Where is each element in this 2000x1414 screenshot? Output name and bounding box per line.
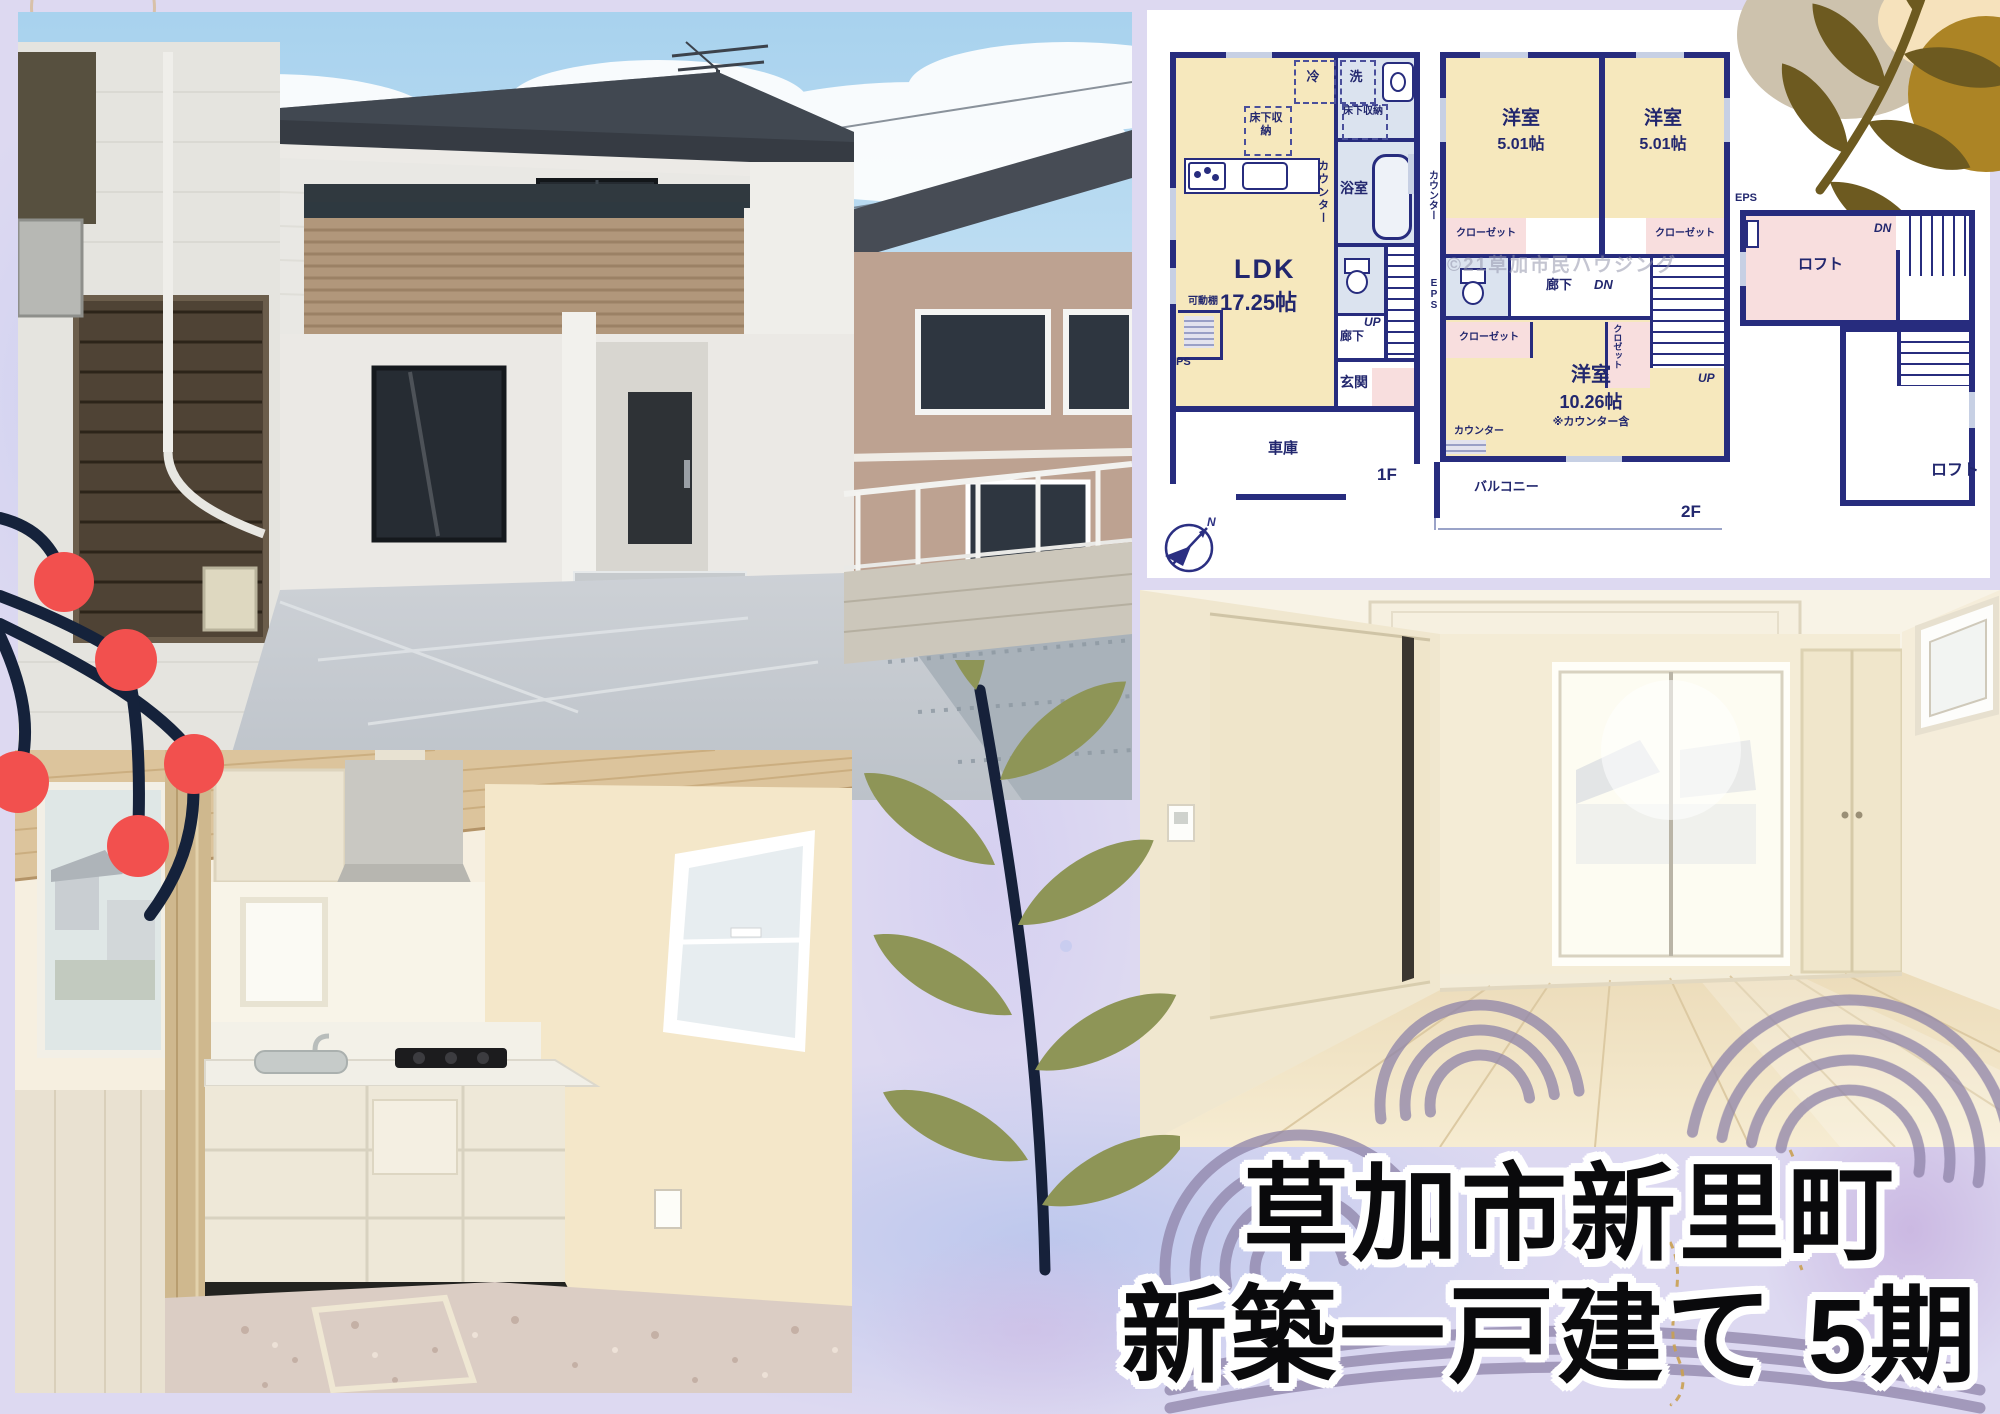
arc-group-center xyxy=(1367,992,1579,1119)
range-hood xyxy=(333,750,475,892)
berries-decoration xyxy=(0,400,300,940)
base-cabinets xyxy=(205,1086,577,1306)
closet-a-label: クローゼット xyxy=(1448,228,1524,240)
hallway-label-1f: 廊下 xyxy=(1340,330,1364,344)
watermark: ©21草加市民ハウジング xyxy=(1447,250,1677,277)
garage-area: 車庫 xyxy=(1170,412,1420,502)
real-estate-flyer: 冷 洗 床下収納 床下収納 洗面所 浴室 カウンター LDK 17.25帖 廊下 xyxy=(0,0,2000,1414)
west-room-a-size: 5.01帖 xyxy=(1476,136,1566,154)
closet-b-label: クローゼット xyxy=(1648,228,1722,240)
stairs-1f xyxy=(1388,245,1414,358)
loft-stairs-right xyxy=(1901,332,1969,386)
hallway-label-2f: 廊下 xyxy=(1546,278,1572,293)
sink-basin xyxy=(255,1051,347,1073)
compass-icon: N xyxy=(1157,516,1221,578)
dn-label-2f: DN xyxy=(1594,278,1613,293)
toilet-icon xyxy=(1344,258,1368,294)
loft-caption: ロフト xyxy=(1931,462,1979,480)
title-line-2: 新築一戸建て 5期 xyxy=(1100,1284,2000,1390)
closet-doors xyxy=(1802,650,1902,972)
floor-1f-plan: 冷 洗 床下収納 床下収納 洗面所 浴室 カウンター LDK 17.25帖 廊下 xyxy=(1170,52,1420,412)
eps-notch xyxy=(1746,220,1759,248)
counter-label-2f-left: カウンター xyxy=(1426,170,1438,270)
wood-balcony xyxy=(304,218,750,342)
counter-hatch-2f xyxy=(1446,440,1486,454)
entrance-label: 玄関 xyxy=(1340,374,1368,390)
gold-leaves-decoration xyxy=(1680,0,2000,210)
shelf-hatch xyxy=(1184,316,1214,348)
title-line-1: 草加市新里町 xyxy=(1140,1162,2000,1268)
main-room-label: 洋室 xyxy=(1536,364,1646,387)
counter-label-2f-bottom: カウンター xyxy=(1454,426,1504,438)
eps-label-2f: EPS xyxy=(1428,278,1440,324)
svg-text:N: N xyxy=(1207,516,1216,529)
genkan-step xyxy=(1372,368,1414,406)
balcony-area: バルコニー xyxy=(1434,462,1724,536)
fridge-label: 冷 xyxy=(1300,70,1326,85)
leaf-branch-decoration xyxy=(660,660,1180,1300)
bathroom-label: 浴室 xyxy=(1340,180,1368,196)
west-room-a-label: 洋室 xyxy=(1476,108,1566,130)
stove-icon xyxy=(1188,162,1226,190)
dn-label-loft: DN xyxy=(1874,222,1891,236)
underfloor-storage-label: 床下収納 xyxy=(1246,112,1286,137)
loft-plan-upper: ロフト DN xyxy=(1740,210,1975,326)
ldk-size-label: 17.25帖 xyxy=(1220,290,1297,315)
glass-door xyxy=(1552,662,1790,966)
closet-c-label: クローゼット xyxy=(1450,332,1528,344)
main-room-size: 10.26帖 xyxy=(1526,392,1656,413)
washer-label: 洗 xyxy=(1344,70,1368,85)
washbasin-icon xyxy=(1382,62,1414,102)
door-slit xyxy=(1402,636,1414,982)
floor-1f-caption: 1F xyxy=(1377,465,1397,485)
up-label-2f: UP xyxy=(1698,372,1715,386)
loft-room-label: ロフト xyxy=(1798,256,1843,273)
ldk-label: LDK xyxy=(1234,254,1296,285)
bathtub-icon xyxy=(1372,154,1412,240)
main-room-note: ※カウンター含 xyxy=(1526,416,1656,429)
movable-shelf-label: 可動棚 xyxy=(1188,296,1218,308)
garage-label: 車庫 xyxy=(1268,440,1298,457)
balcony-label: バルコニー xyxy=(1474,480,1539,495)
ps-label: PS xyxy=(1176,356,1191,369)
up-label-1f: UP xyxy=(1364,316,1381,330)
left-floor xyxy=(15,1090,165,1393)
counter-label-1f: カウンター xyxy=(1316,160,1329,270)
loft-stairs-top xyxy=(1900,216,1969,276)
underfloor-storage-label: 床下収納 xyxy=(1343,106,1383,118)
sink-icon xyxy=(1242,162,1288,190)
floor-2f-caption: 2F xyxy=(1681,502,1701,522)
